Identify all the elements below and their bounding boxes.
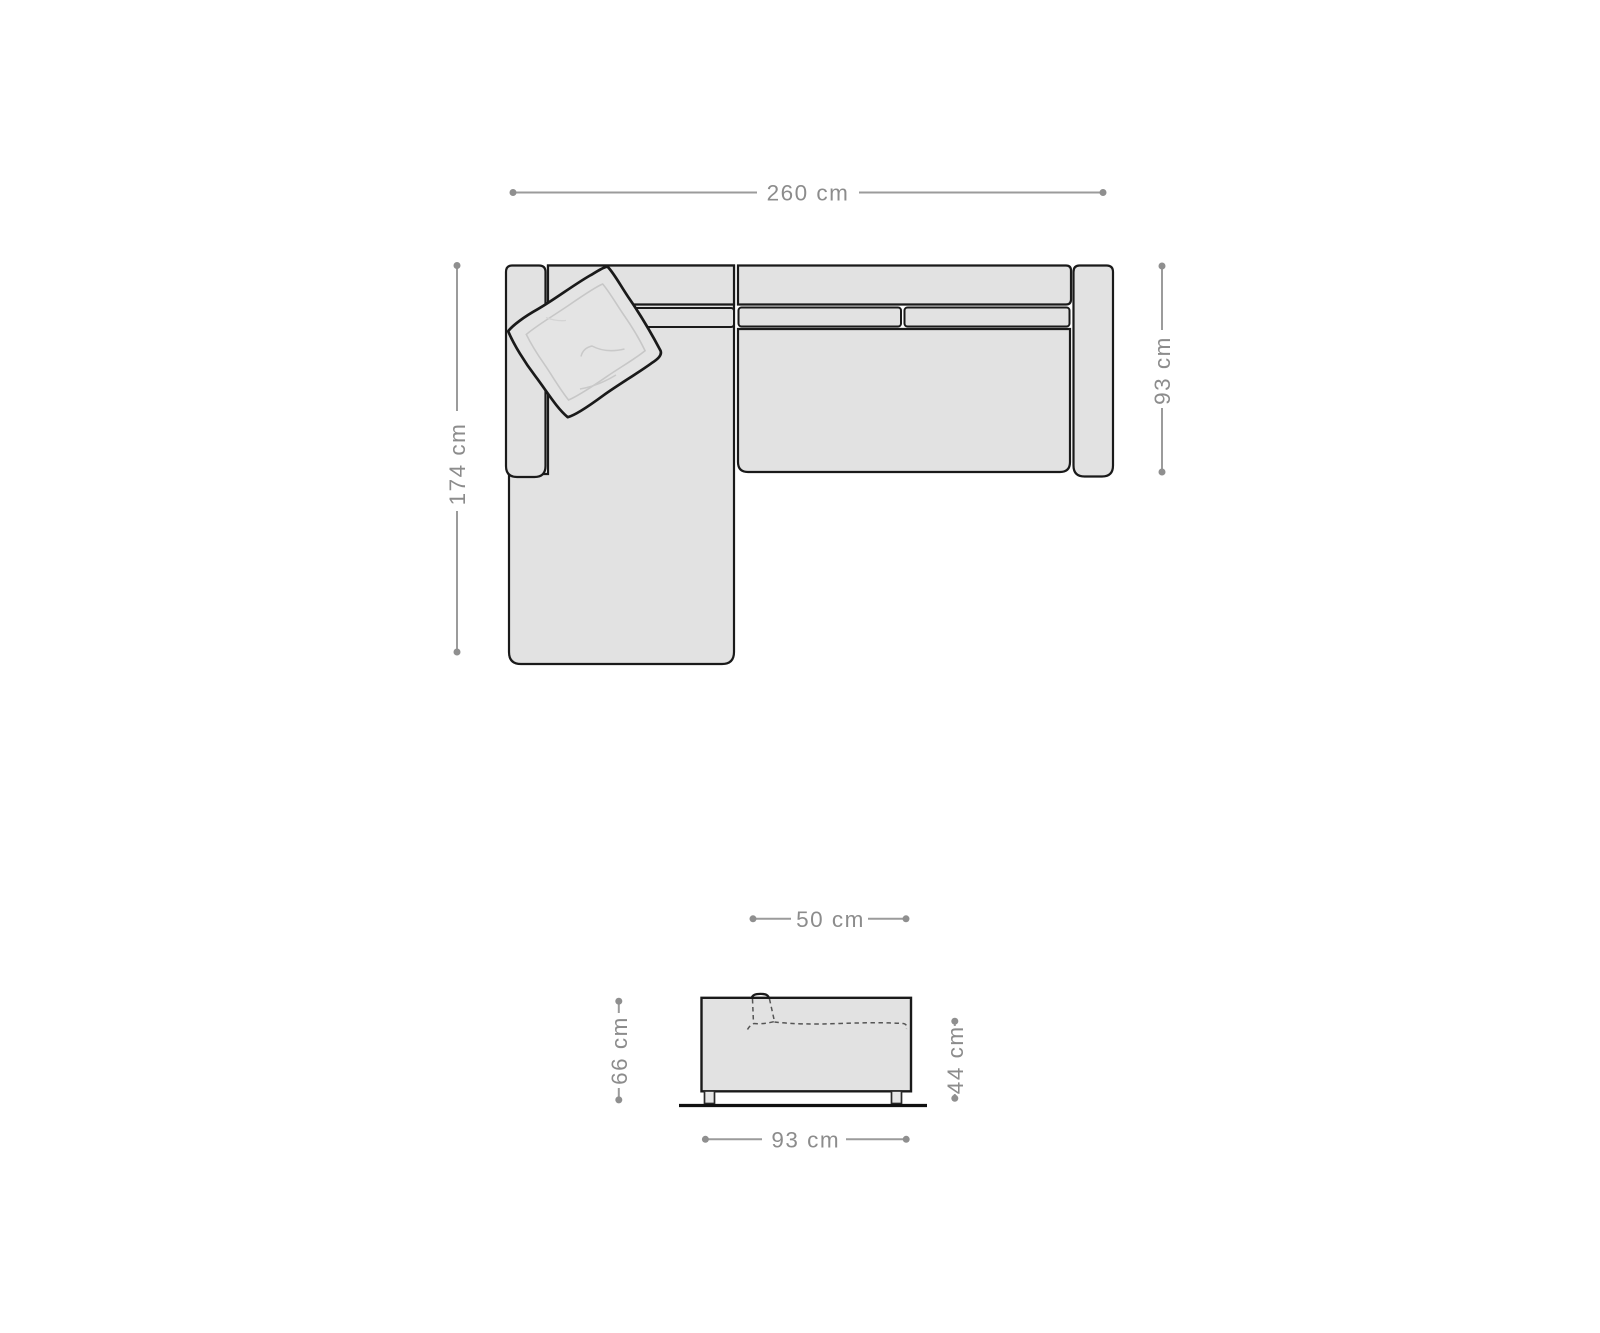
svg-text:93 cm: 93 cm xyxy=(771,1127,840,1152)
svg-text:50 cm: 50 cm xyxy=(796,907,865,932)
svg-text:66 cm: 66 cm xyxy=(607,1016,632,1085)
svg-text:260 cm: 260 cm xyxy=(767,181,850,206)
svg-text:93 cm: 93 cm xyxy=(1150,336,1175,405)
svg-text:174 cm: 174 cm xyxy=(445,423,470,506)
svg-text:44 cm: 44 cm xyxy=(943,1025,968,1094)
